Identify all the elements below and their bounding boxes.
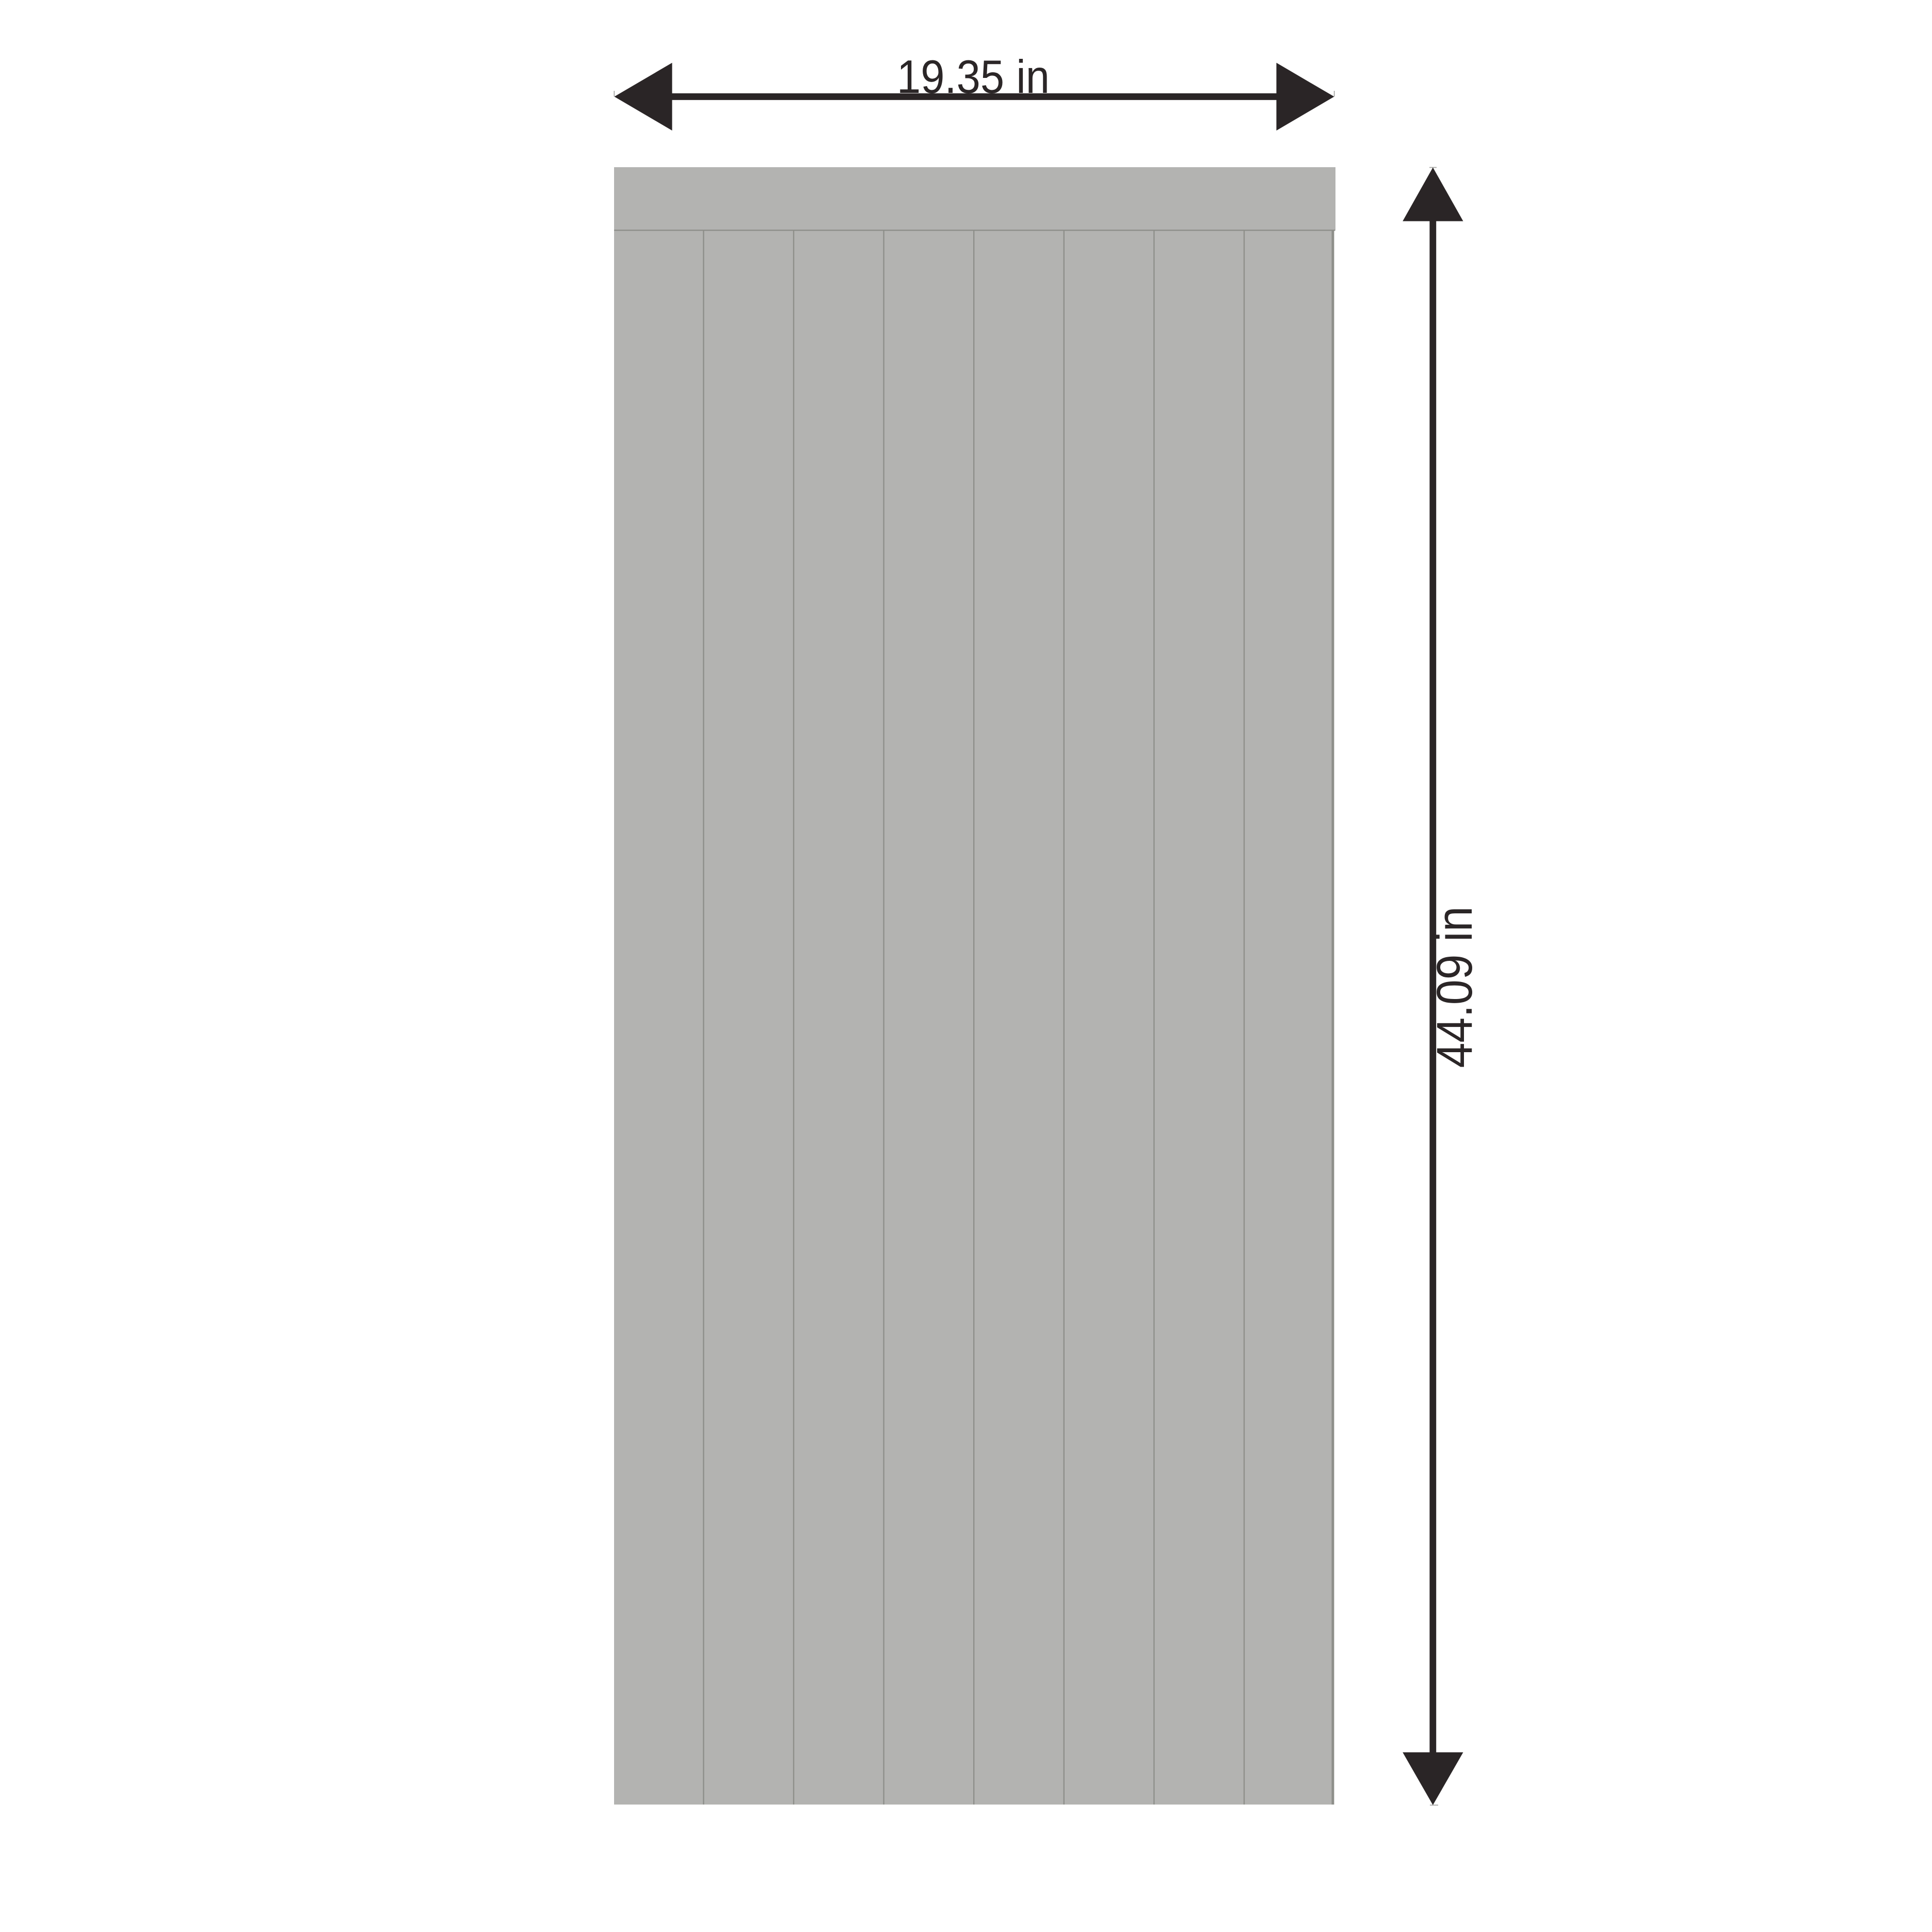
- svg-text:44.09 in: 44.09 in: [1426, 907, 1483, 1068]
- svg-text:19.35 in: 19.35 in: [897, 51, 1050, 103]
